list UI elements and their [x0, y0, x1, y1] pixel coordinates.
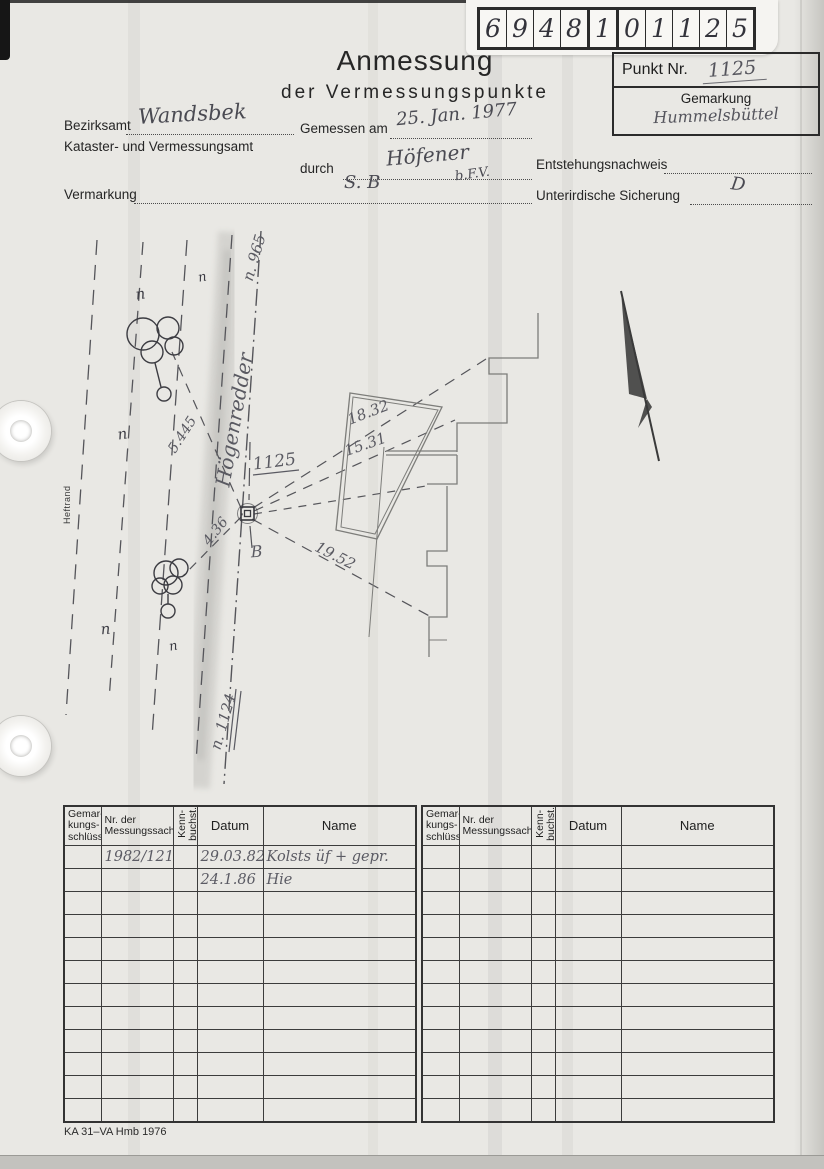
street-shading [197, 232, 231, 788]
table-cell [621, 938, 774, 961]
table-row [64, 1053, 416, 1076]
table-cell [555, 892, 621, 915]
amt-label: Kataster- und Vermessungsamt [64, 139, 253, 154]
sketch-label: n [116, 424, 128, 443]
vermarkung-value: S. B [344, 172, 380, 193]
code-digit: 9 [507, 10, 534, 47]
bezirksamt-value: Wandsbek [137, 99, 247, 129]
table-cell [64, 938, 101, 961]
table-cell [621, 846, 774, 869]
table-cell [101, 1099, 173, 1123]
table-cell [263, 915, 416, 938]
table-cell [101, 1076, 173, 1099]
table-cell [263, 1007, 416, 1030]
table-cell [459, 984, 531, 1007]
table-cell [64, 846, 101, 869]
table-cell [197, 938, 263, 961]
table-cell [101, 1007, 173, 1030]
code-digit: 8 [561, 10, 590, 47]
column-header: Kenn- buchst. [173, 806, 197, 846]
column-header: Name [621, 806, 774, 846]
table-cell [531, 938, 555, 961]
table-cell [64, 1099, 101, 1123]
page-right-edge [794, 0, 824, 1169]
column-header: Datum [555, 806, 621, 846]
table-cell [621, 961, 774, 984]
table-cell [555, 1076, 621, 1099]
code-box: 6948101125 [477, 7, 756, 50]
table-cell [459, 869, 531, 892]
table-cell [422, 846, 459, 869]
table-cell [621, 1053, 774, 1076]
table-cell [459, 846, 531, 869]
table-cell [173, 1030, 197, 1053]
table-cell [64, 869, 101, 892]
table-cell [263, 1076, 416, 1099]
table-row [64, 1030, 416, 1053]
sketch-label: n [134, 284, 146, 303]
table-cell [101, 961, 173, 984]
table-cell [621, 1030, 774, 1053]
table-cell [101, 869, 173, 892]
table-cell [263, 938, 416, 961]
sketch-label: 4.36 [199, 514, 231, 549]
sketch-labels: Högenreddern. 965n. 11241125B5.4454.3619… [100, 232, 392, 752]
table-cell [64, 1053, 101, 1076]
table-cell [555, 915, 621, 938]
record-table-right: Gemar- kungs- schlüsselNr. der Messungss… [421, 805, 775, 1123]
table-cell [197, 1007, 263, 1030]
table-row [64, 915, 416, 938]
survey-point-marker [238, 504, 258, 524]
table-row [422, 1076, 774, 1099]
table-row [422, 846, 774, 869]
table-row [422, 915, 774, 938]
table-cell [101, 915, 173, 938]
table-cell [422, 1007, 459, 1030]
code-digit: 1 [590, 10, 619, 47]
table-cell [459, 1053, 531, 1076]
table-cell [422, 915, 459, 938]
code-digit: 1 [673, 10, 700, 47]
table-cell [621, 1076, 774, 1099]
sketch-label: 1125 [252, 449, 297, 474]
table-cell [197, 1099, 263, 1123]
table-cell [459, 1030, 531, 1053]
table-row [64, 1099, 416, 1123]
code-digit: 2 [700, 10, 727, 47]
gemessen-line [390, 137, 532, 139]
code-digit: 6 [480, 10, 507, 47]
table-cell [422, 869, 459, 892]
table-row [64, 1076, 416, 1099]
table-cell [555, 1030, 621, 1053]
table-cell [531, 961, 555, 984]
sketch-label: n. 965 [239, 232, 269, 283]
table-row [422, 1030, 774, 1053]
table-row [64, 892, 416, 915]
table-row [64, 961, 416, 984]
punkt-nr-label: Punkt Nr. [622, 61, 688, 79]
table-row [422, 1053, 774, 1076]
table-cell [459, 938, 531, 961]
table-cell [422, 892, 459, 915]
table-cell [263, 1030, 416, 1053]
sketch-label: 15.31 [342, 429, 388, 460]
table-cell [621, 984, 774, 1007]
table-cell [173, 1053, 197, 1076]
scan-edge-bottom [0, 1155, 824, 1169]
table-cell [64, 1007, 101, 1030]
table-cell: 29.03.82 [197, 846, 263, 869]
hole-punch-top [0, 401, 51, 461]
table-cell: Hie [263, 869, 416, 892]
sketch-label: 5.445 [165, 414, 200, 456]
table-cell [422, 961, 459, 984]
sketch-label: 19.52 [312, 538, 358, 574]
sicherung-line [690, 203, 812, 205]
code-digit: 0 [619, 10, 646, 47]
table-cell [197, 915, 263, 938]
table-cell [263, 892, 416, 915]
table-cell [422, 938, 459, 961]
table-cell [173, 1007, 197, 1030]
table-row [422, 869, 774, 892]
table-cell [459, 915, 531, 938]
sketch-label: n [197, 269, 208, 285]
label-underlines [229, 470, 299, 752]
table-cell [459, 1076, 531, 1099]
table-cell [422, 1099, 459, 1123]
table-cell [459, 892, 531, 915]
table-cell [64, 1030, 101, 1053]
scan-edge-top [0, 0, 478, 3]
sketch-label: 18.32 [345, 396, 392, 428]
table-cell [621, 869, 774, 892]
code-digit: 4 [534, 10, 561, 47]
table-cell [173, 869, 197, 892]
gemarkung-value: Hummelsbüttel [614, 102, 819, 128]
table-row [422, 1007, 774, 1030]
sketch-label: n. 1124 [207, 692, 240, 752]
table-cell [101, 1053, 173, 1076]
form-title: Anmessung [320, 45, 510, 77]
table-cell: Kolsts üf + gepr. [263, 846, 416, 869]
measurement-lines [172, 352, 486, 618]
table-cell: 1982/121 [101, 846, 173, 869]
table-cell [531, 984, 555, 1007]
table-cell [173, 846, 197, 869]
table-row [422, 1099, 774, 1123]
table-cell [173, 1099, 197, 1123]
building-outlines [336, 313, 538, 657]
table-cell [422, 1030, 459, 1053]
durch-label: durch [300, 161, 334, 176]
table-row [64, 984, 416, 1007]
table-cell [101, 892, 173, 915]
scan-edge-left [0, 0, 10, 60]
table-cell [531, 1007, 555, 1030]
table-cell: 24.1.86 [197, 869, 263, 892]
table-cell [555, 846, 621, 869]
sketch-label: n [168, 638, 179, 654]
table-cell [197, 1030, 263, 1053]
table-cell [531, 892, 555, 915]
vermarkung-label: Vermarkung [64, 187, 137, 202]
table-row: 24.1.86Hie [64, 869, 416, 892]
scanned-survey-form: Heftrand 6948101125 Punkt Nr. 1125 Gemar… [0, 0, 824, 1169]
durch-value-suffix: b.F.V. [454, 165, 491, 185]
table-cell [621, 1007, 774, 1030]
column-header: Name [263, 806, 416, 846]
table-cell [197, 892, 263, 915]
table-cell [64, 984, 101, 1007]
sketch-label: B [249, 542, 263, 562]
table-cell [555, 869, 621, 892]
table-cell [531, 1053, 555, 1076]
table-cell [173, 892, 197, 915]
table-cell [459, 961, 531, 984]
column-header: Kenn- buchst. [531, 806, 555, 846]
form-subtitle: der Vermessungspunkte [270, 82, 560, 104]
table-row [422, 892, 774, 915]
table-cell [422, 984, 459, 1007]
table-cell [263, 1053, 416, 1076]
table-cell [422, 1053, 459, 1076]
table-cell [64, 915, 101, 938]
code-digit: 1 [646, 10, 673, 47]
page-crease [800, 0, 802, 1169]
table-row [64, 938, 416, 961]
tree-symbols [127, 317, 188, 618]
table-cell [422, 1076, 459, 1099]
table-cell [531, 846, 555, 869]
table-cell [64, 892, 101, 915]
table-cell [555, 1099, 621, 1123]
column-header: Nr. der Messungssache [459, 806, 531, 846]
table-row [422, 961, 774, 984]
record-table-left: Gemar- kungs- schlüsselNr. der Messungss… [63, 805, 417, 1123]
table-cell [621, 915, 774, 938]
punkt-nr-value: 1125 [701, 56, 767, 84]
table-cell [459, 1007, 531, 1030]
form-code: KA 31–VA Hmb 1976 [64, 1126, 167, 1138]
table-cell [555, 938, 621, 961]
durch-value: Höfener [385, 139, 470, 170]
table-cell [555, 1007, 621, 1030]
table-cell [197, 1076, 263, 1099]
table-cell [459, 1099, 531, 1123]
table-cell [555, 984, 621, 1007]
entstehungsnachweis-label: Entstehungsnachweis [536, 157, 667, 172]
heftrand-label: Heftrand [62, 485, 72, 524]
table-cell [531, 1076, 555, 1099]
table-cell [173, 938, 197, 961]
table-cell [621, 1099, 774, 1123]
table-cell [173, 1076, 197, 1099]
table-cell [197, 961, 263, 984]
column-header: Gemar- kungs- schlüssel [64, 806, 101, 846]
table-cell [64, 961, 101, 984]
column-header: Nr. der Messungssache [101, 806, 173, 846]
table-cell [64, 1076, 101, 1099]
north-arrow [621, 291, 659, 461]
table-cell [101, 938, 173, 961]
table-cell [531, 1030, 555, 1053]
table-cell [263, 1099, 416, 1123]
table-cell [101, 984, 173, 1007]
bezirksamt-line [126, 133, 294, 135]
sicherung-value: D [730, 173, 747, 196]
column-header: Gemar- kungs- schlüssel [422, 806, 459, 846]
sketch-label: n [100, 620, 111, 639]
table-cell [621, 892, 774, 915]
code-digit: 5 [727, 10, 753, 47]
table-cell [173, 984, 197, 1007]
gemessen-label: Gemessen am [300, 121, 388, 136]
street-lines [66, 231, 261, 784]
sicherung-label: Unterirdische Sicherung [536, 188, 680, 203]
table-cell [173, 915, 197, 938]
table-row: 1982/12129.03.82Kolsts üf + gepr. [64, 846, 416, 869]
punkt-box: Punkt Nr. 1125 Gemarkung Hummelsbüttel [612, 52, 820, 136]
table-cell [555, 1053, 621, 1076]
table-row [64, 1007, 416, 1030]
column-header: Datum [197, 806, 263, 846]
bezirksamt-label: Bezirksamt [64, 118, 131, 133]
table-cell [197, 1053, 263, 1076]
table-cell [531, 1099, 555, 1123]
table-cell [263, 961, 416, 984]
table-cell [173, 961, 197, 984]
table-cell [263, 984, 416, 1007]
table-cell [531, 915, 555, 938]
table-row [422, 938, 774, 961]
table-row [422, 984, 774, 1007]
table-cell [555, 961, 621, 984]
table-cell [531, 869, 555, 892]
table-cell [101, 1030, 173, 1053]
sketch-label: Högenredder [210, 350, 258, 490]
vermarkung-line [134, 202, 532, 204]
table-cell [197, 984, 263, 1007]
hole-punch-bottom [0, 716, 51, 776]
